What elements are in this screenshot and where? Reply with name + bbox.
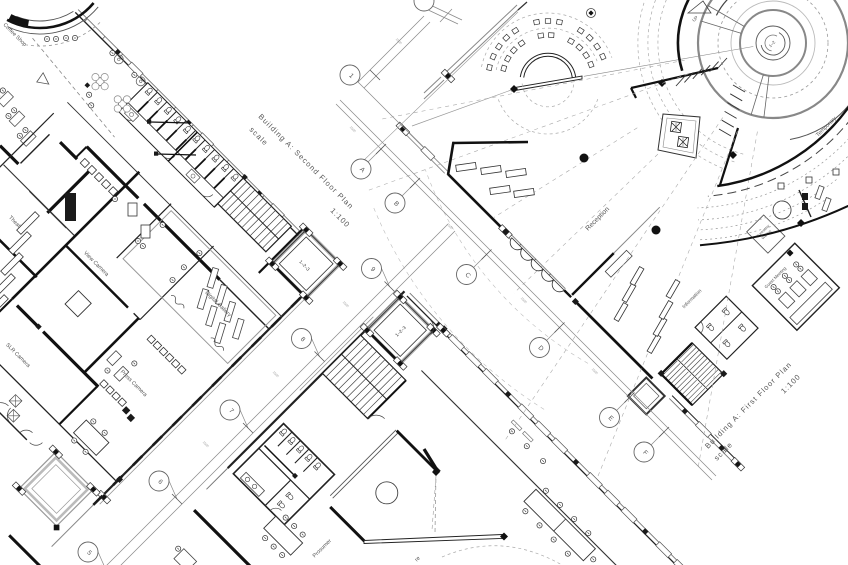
svg-text:Temporary: Temporary <box>815 116 838 139</box>
svg-text:Building A: Second Floor Plan: Building A: Second Floor Plan <box>257 112 356 211</box>
svg-text:Prosumer: Prosumer <box>312 538 333 559</box>
svg-text:1500: 1500 <box>591 367 599 375</box>
svg-text:Press Camera: Press Camera <box>119 369 149 399</box>
svg-text:re: re <box>414 555 422 563</box>
svg-text:1500: 1500 <box>349 125 357 133</box>
svg-text:SLR Camera: SLR Camera <box>4 342 31 369</box>
svg-text:Information: Information <box>681 288 703 310</box>
svg-text:1500: 1500 <box>446 222 454 230</box>
svg-text:Digital Gallery: Digital Gallery <box>204 290 233 319</box>
svg-text:1500: 1500 <box>272 370 280 378</box>
svg-text:1500: 1500 <box>202 440 210 448</box>
svg-text:1–2: 1–2 <box>768 39 777 48</box>
svg-text:1500: 1500 <box>342 300 350 308</box>
svg-text:UP: UP <box>691 15 699 23</box>
svg-text:Reception: Reception <box>584 206 611 233</box>
svg-text:1500: 1500 <box>520 296 528 304</box>
